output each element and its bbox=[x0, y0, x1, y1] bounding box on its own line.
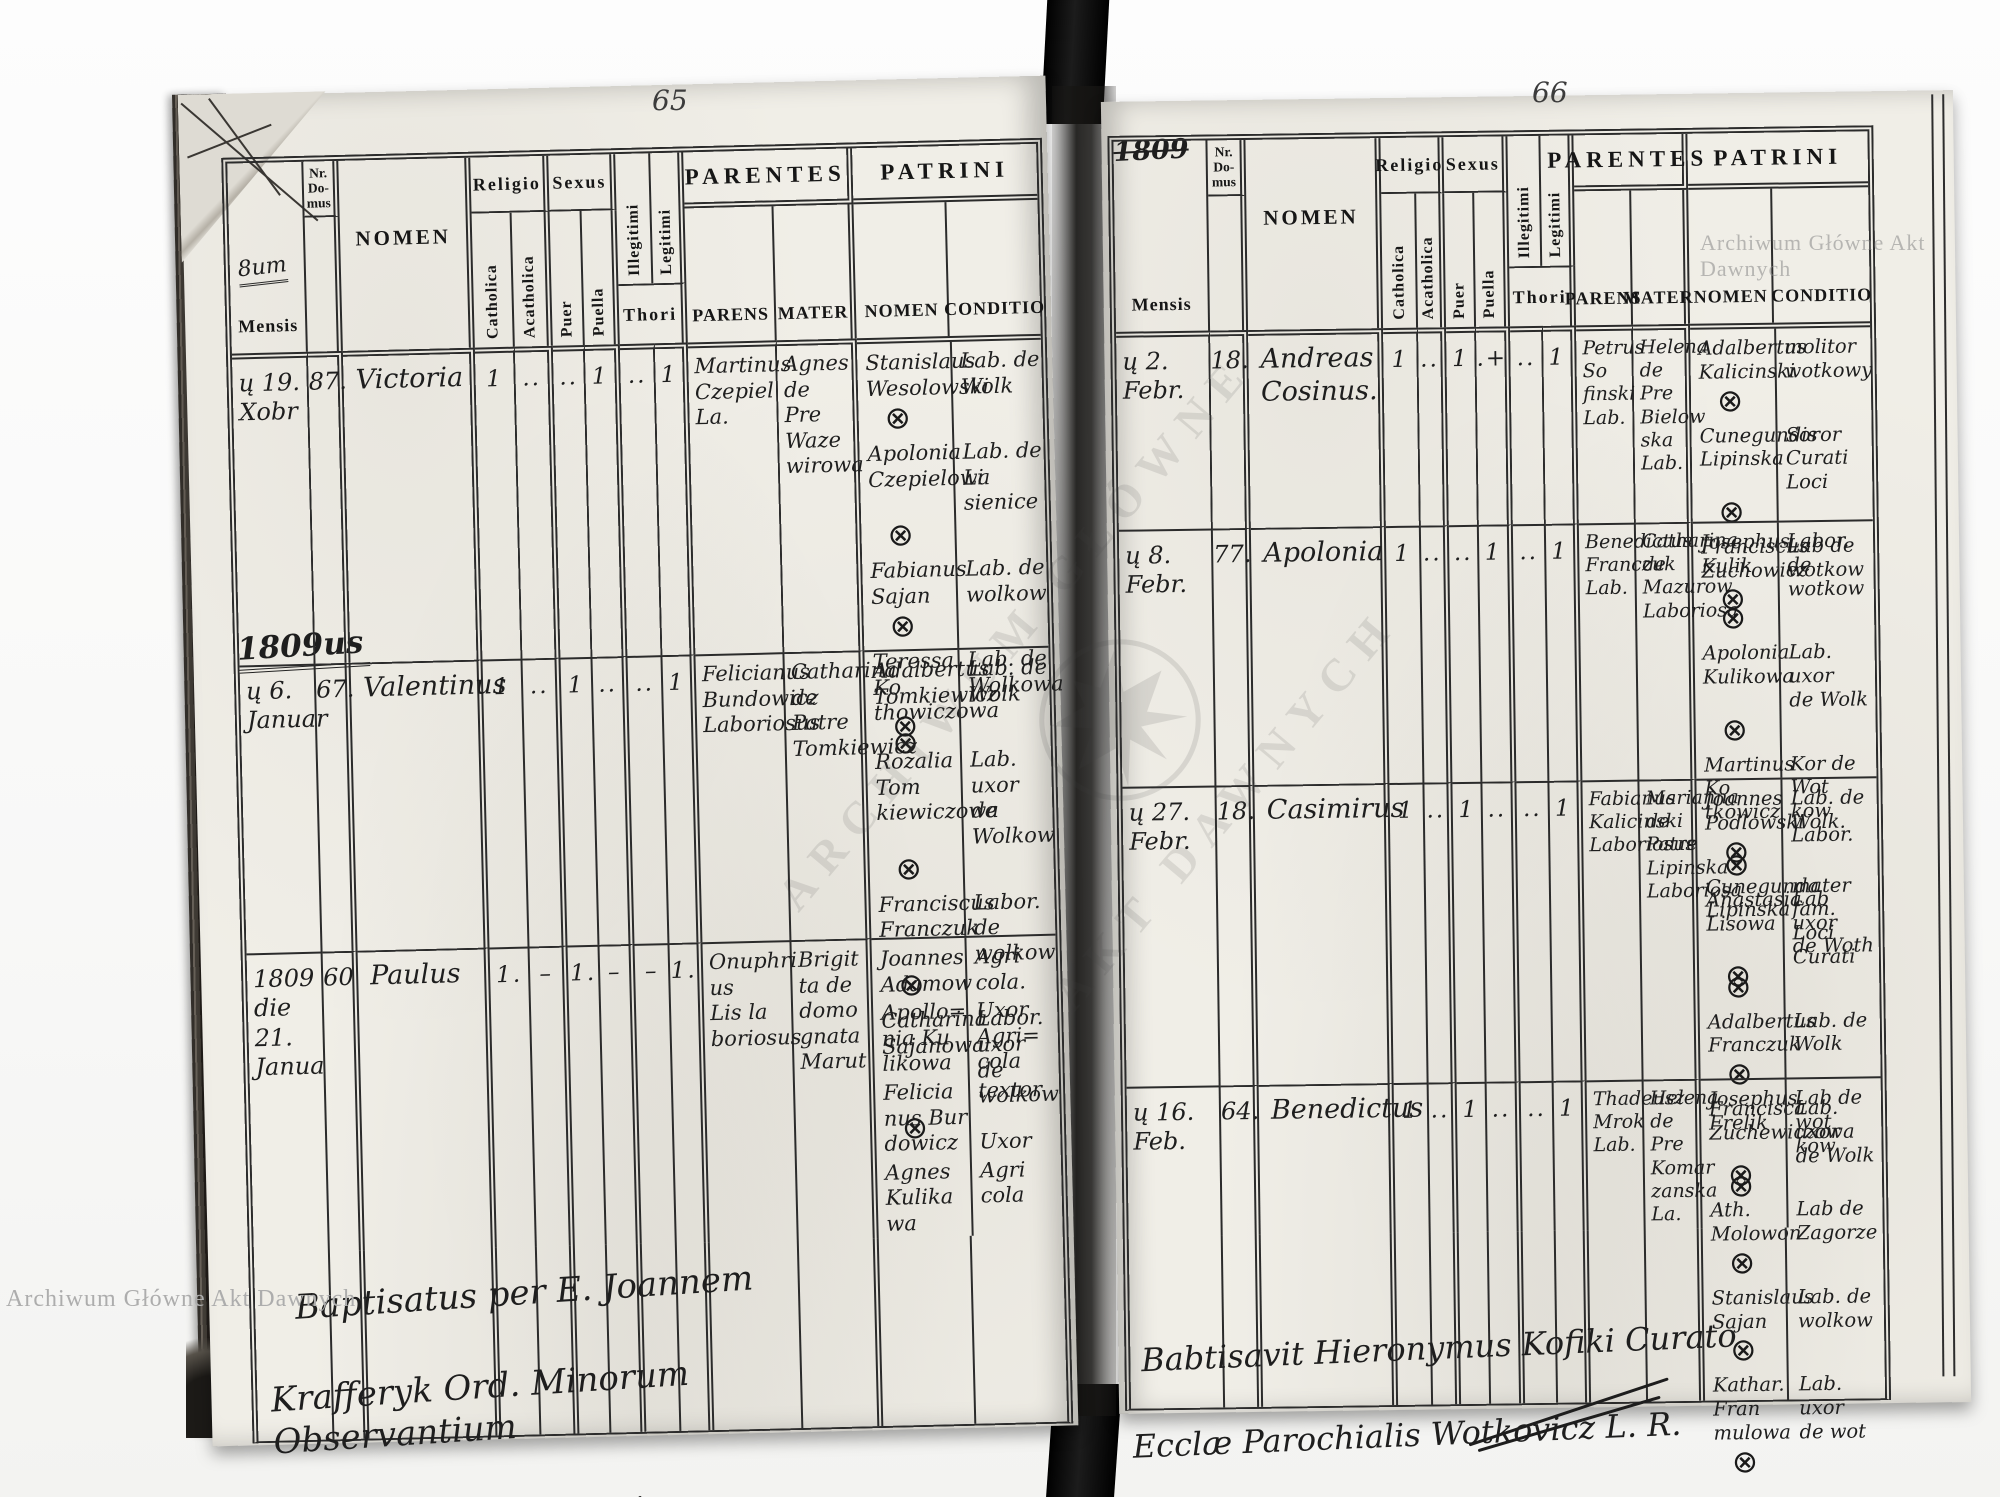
godparent-mark-row: ⊗ bbox=[866, 706, 1051, 747]
tally-mark: 1 bbox=[1554, 1080, 1589, 1230]
spacer bbox=[1778, 600, 1875, 638]
signature-cross-icon: ⊗ bbox=[863, 608, 957, 647]
tally-mark: .+ bbox=[1476, 326, 1513, 524]
mother-name: Brigit ta de domo gnata Marut bbox=[791, 938, 878, 1240]
tally-mark: 1 bbox=[482, 659, 529, 948]
signature-cross-icon: ⊗ bbox=[858, 400, 952, 439]
header-legitimi: Legitimi bbox=[650, 152, 686, 283]
note-line: Krafferyk Ord. Minorum Observantium bbox=[270, 1338, 946, 1464]
empty-ruled-cell bbox=[1787, 1226, 1885, 1399]
spacer bbox=[1781, 833, 1878, 871]
signature-cross-icon: ⊗ bbox=[1697, 834, 1782, 872]
godparent-condition: Lab. de Wolk bbox=[957, 652, 1049, 708]
godparent-entry: Apollo= nia Ku likowaUxor Agri= cola bbox=[873, 994, 1059, 1078]
baptism-register-table-right: MensisNr. Do- musNOMENReligioCatholicaAc… bbox=[1107, 125, 1891, 1411]
godparent-condition: Labor. de wotkow bbox=[1777, 525, 1874, 601]
tally-mark: 1 bbox=[1383, 328, 1421, 526]
godparent-name: Felicia nus Bur dowicz bbox=[875, 1076, 970, 1158]
tally-mark: .. bbox=[1449, 525, 1483, 782]
header-patrini: PATRINI bbox=[1687, 131, 1868, 190]
godparent-name: Cunegunda Lipinska bbox=[1698, 871, 1783, 970]
godparent-condition: Lab. de Wolk bbox=[950, 344, 1042, 400]
signature-cross-icon: ⊗ bbox=[869, 851, 963, 890]
godparent-name: Josephus Kulik bbox=[1693, 527, 1778, 603]
tally-mark: 1 bbox=[1549, 780, 1586, 1080]
godparent-name: Stanislaus Wesolowski bbox=[857, 346, 951, 402]
tally-mark: 1 bbox=[1546, 523, 1583, 780]
godparent-condition: molitor wotkowy bbox=[1774, 331, 1872, 383]
header-parentes: PARENTES bbox=[683, 148, 853, 208]
godparent-name: Joannes Podlowski bbox=[1696, 784, 1781, 836]
page-number-right: 66 bbox=[1532, 76, 1568, 110]
godparent-condition: Lab. uxor de Wolk bbox=[1778, 637, 1875, 713]
house-number: 18. bbox=[1210, 330, 1251, 529]
tally-mark: 1 bbox=[1543, 325, 1579, 523]
spacer bbox=[954, 515, 1046, 554]
tally-mark: .. bbox=[1424, 782, 1456, 1082]
tally-mark: 1 bbox=[1389, 783, 1428, 1083]
godparent-mark-row: ⊗ bbox=[863, 606, 1048, 647]
child-name: Apolonia bbox=[1251, 526, 1390, 785]
entry-date: ų 2. Febr. bbox=[1116, 331, 1213, 530]
godparent-name: Adalbertus Franczuk bbox=[1700, 1006, 1785, 1058]
spacer bbox=[956, 606, 1048, 645]
tally-mark: .. bbox=[1516, 781, 1553, 1081]
tally-mark: 1 bbox=[1452, 782, 1486, 1082]
note-line: mpa bbox=[1547, 1481, 1768, 1497]
child-name: Paulus bbox=[358, 947, 497, 1250]
header-puer-label: Puer bbox=[558, 300, 577, 337]
baptism-note-left: Baptisatus per E. Joannem Krafferyk Ord.… bbox=[273, 1206, 954, 1497]
header-legitimi-label: Legitimi bbox=[1546, 192, 1565, 258]
tally-mark: 1 bbox=[1386, 526, 1425, 783]
header-legitimi-label: Legitimi bbox=[656, 209, 676, 275]
mother-name: Helena de Pre Bielow ska Lab. bbox=[1633, 324, 1693, 523]
header-catholica: Catholica bbox=[1381, 194, 1418, 328]
godparent-entry: Adalbertus FranczukLab. de Wolk bbox=[1700, 1005, 1881, 1058]
godparent-name: Apolonia Czepielowa bbox=[859, 437, 954, 519]
note-line: Ecclæ Parochialis Wotkovicz L. R. bbox=[1132, 1401, 1765, 1466]
godparent-condition: Lab. de Wolk bbox=[1784, 1005, 1881, 1057]
header-illegitimi: Illegitimi bbox=[615, 153, 653, 284]
tally-mark: .. bbox=[1482, 781, 1520, 1081]
spacer bbox=[959, 706, 1051, 745]
entry-date: 1809 die 21. Janua bbox=[247, 952, 330, 1254]
header-patrini-nomen: NOMEN bbox=[853, 202, 949, 338]
godparent-entry: Josephus KulikLabor. de wotkow bbox=[1693, 525, 1874, 602]
godparent-condition: Lab. de Li sienice bbox=[952, 435, 1045, 517]
godparent-entry: Adalbertus Kalicinskimolitor wotkowy bbox=[1690, 331, 1871, 384]
godparent-entry: Josephus FrelikLab de wot kow bbox=[1701, 1082, 1882, 1159]
spacer bbox=[1790, 1443, 1887, 1481]
godparent-entry: Cunegundis LipinskaSoror Curati Loci bbox=[1691, 419, 1872, 496]
header-catholica: Catholica bbox=[472, 213, 515, 348]
child-name: Victoria bbox=[343, 348, 483, 663]
godparent-entry: Apolonia CzepielowaLab. de Li sienice bbox=[859, 435, 1045, 519]
godparent-name: Adalbertus Tomkiewicz bbox=[865, 654, 959, 710]
header-catholica-label: Catholica bbox=[483, 264, 503, 339]
spacer bbox=[1779, 711, 1876, 749]
entry-date: ų 8. Febr. bbox=[1119, 528, 1217, 786]
tally-mark: 1 bbox=[1457, 1082, 1489, 1232]
godparent-mark-row: ⊗ bbox=[858, 398, 1043, 439]
tally-mark: .. bbox=[1510, 326, 1546, 524]
baptism-note-right: Babtisavit Hieronymus Kofiki Curato Eccl… bbox=[1139, 1276, 1774, 1497]
godparent-entry: Adalbertus TomkiewiczLab. de Wolk bbox=[865, 652, 1050, 711]
header-acatholica-label: Acatholica bbox=[1419, 236, 1438, 319]
godparent-name: Apollo= nia Ku likowa bbox=[873, 996, 968, 1078]
godparent-name: Apolonia Kulikowa bbox=[1694, 638, 1779, 714]
left-page: 8um 1809us MensisNr. Do- musNOMENReligio… bbox=[180, 76, 1079, 1447]
godparent-entry: Rozalia Tom kiewiczowaLab. uxor de Wolko… bbox=[867, 743, 1054, 853]
godparent-condition: Soror Curati Loci bbox=[1775, 419, 1872, 495]
godparents-cell: Stanislaus WesolowskiLab. de Wolk⊗Apolon… bbox=[857, 334, 1049, 650]
right-page: 1809 MensisNr. Do- musNOMENReligioCathol… bbox=[1101, 90, 1971, 1414]
godparent-condition: Agri cola bbox=[970, 1153, 1063, 1235]
header-nomen: NOMEN bbox=[338, 158, 475, 351]
signature-cross-icon: ⊗ bbox=[1694, 601, 1779, 639]
child-name: Benedictus bbox=[1259, 1083, 1396, 1235]
spacer bbox=[1783, 968, 1880, 1006]
godparent-entry: Felicia nus Bur dowicztextor Uxor bbox=[875, 1074, 1061, 1158]
note-line: Babtisavit Hieronymus Kofiki Curato bbox=[1140, 1315, 1761, 1380]
header-catholica-label: Catholica bbox=[1389, 245, 1408, 320]
header-sexus: Sexus bbox=[548, 154, 616, 212]
header-mensis: Mensis bbox=[227, 162, 308, 354]
tally-mark: 1 bbox=[1446, 327, 1479, 525]
godparent-mark-row: ⊗ bbox=[1702, 1157, 1882, 1197]
godparent-condition: Lab. de wolkow bbox=[955, 552, 1047, 608]
header-sexus: Sexus bbox=[1443, 136, 1508, 193]
tally-mark: .. bbox=[1421, 525, 1453, 782]
header-religio: Religio bbox=[1380, 137, 1444, 194]
godparent-mark-row: ⊗ bbox=[1694, 600, 1874, 640]
entry-date: ų 19. Xobr bbox=[232, 352, 316, 666]
mother-name: Catharina de Mazurow Laboriosa bbox=[1636, 522, 1697, 780]
godparent-name: Josephus Frelik bbox=[1701, 1084, 1786, 1160]
spacer bbox=[962, 848, 1054, 887]
spacer bbox=[1775, 382, 1872, 420]
godparent-entry: Stanislaus WesolowskiLab. de Wolk bbox=[857, 344, 1042, 403]
father-name: Onuphri us Lis la boriosus bbox=[702, 940, 798, 1242]
entry-date: ų 16. Feb. bbox=[1127, 1085, 1223, 1236]
mother-name: Catharina de Patre Tomkiewicz bbox=[784, 650, 871, 940]
header-religio: Religio bbox=[470, 156, 549, 214]
note-line: Baptisatus per E. Joannem bbox=[294, 1247, 937, 1330]
archive-watermark-top-right: Archiwum Główne Akt Dawnych bbox=[1700, 230, 2000, 282]
child-name: Andreas Cosinus. bbox=[1248, 328, 1386, 528]
godparents-cell: Adalbertus TomkiewiczLab. de Wolk⊗Rozali… bbox=[864, 646, 1055, 938]
godparent-entry: Joannes AdamowAgri cola. bbox=[872, 940, 1057, 999]
signature-cross-icon: ⊗ bbox=[1695, 712, 1780, 750]
empty-ruled-cell bbox=[972, 1234, 1068, 1424]
godparent-condition: Lab. de Wolk. bbox=[1780, 782, 1877, 834]
header-patrini: PATRINI bbox=[852, 144, 1037, 204]
header-nr-domus: Nr. Do- mus bbox=[303, 161, 339, 218]
godparent-mark-row: ⊗ bbox=[1697, 833, 1877, 873]
child-name: Casimirus bbox=[1254, 783, 1393, 1085]
child-name: Valentinus bbox=[351, 660, 490, 951]
godparent-mark-row: ⊗ bbox=[869, 848, 1054, 889]
house-number: 77. bbox=[1213, 528, 1255, 786]
header-conditio: CONDITIO bbox=[946, 200, 1040, 336]
header-puella-label: Puella bbox=[1480, 270, 1499, 319]
header-puella: Puella bbox=[1474, 192, 1510, 326]
header-puer-label: Puer bbox=[1450, 282, 1469, 319]
godparent-entry: Cunegunda Lipinskamater fam. Loci Curati bbox=[1698, 870, 1879, 971]
godparents-cell: Adalbertus Kalicinskimolitor wotkowy⊗Cun… bbox=[1690, 321, 1873, 521]
spacer bbox=[1786, 1157, 1883, 1195]
tally-mark: .. bbox=[1418, 327, 1449, 525]
header-mensis: Mensis bbox=[1113, 141, 1210, 332]
mother-name: Agnes de Pre Waze wirowa bbox=[777, 338, 865, 652]
header-mater: MATER bbox=[1631, 190, 1690, 325]
house-number: 18. bbox=[1216, 785, 1258, 1086]
note-line: S. E. Francisci. bbox=[394, 1470, 952, 1497]
tally-mark: .. bbox=[1521, 1081, 1556, 1231]
header-puella: Puella bbox=[582, 210, 620, 345]
header-nr-domus-spacer bbox=[305, 217, 343, 352]
header-puella-label: Puella bbox=[589, 288, 608, 337]
godparent-entry: Fabianus SajanLab. de wolkow bbox=[862, 552, 1047, 611]
father-name: Fabianus Kalicinski Laboriosus bbox=[1582, 780, 1643, 1081]
signature-cross-icon: ⊗ bbox=[1702, 1158, 1787, 1196]
godparents-cell: Josephus KulikLabor. de wotkow⊗Apolonia … bbox=[1693, 519, 1877, 778]
archive-watermark-bottom-left: Archiwum Główne Akt Dawnych bbox=[6, 1286, 356, 1313]
godparent-condition: textor Uxor bbox=[968, 1074, 1061, 1156]
spacer bbox=[951, 398, 1043, 437]
godparent-name: Cunegundis Lipinska bbox=[1691, 420, 1776, 496]
father-name: Felicianus Bundowicz Laboriosus bbox=[695, 652, 791, 942]
header-mater: MATER bbox=[773, 204, 856, 340]
mother-name: Helena de Pre Komar zanska La. bbox=[1644, 1079, 1703, 1230]
header-illegitimi: Illegitimi bbox=[1507, 136, 1542, 266]
header-parens: PARENS bbox=[685, 206, 777, 342]
mother-name: Marianna de Patre Lipinska Laboriosa bbox=[1639, 779, 1700, 1080]
father-name: Benedictus Franczuk Lab. bbox=[1579, 523, 1640, 781]
header-puer: Puer bbox=[550, 211, 585, 346]
godparent-name: Fabianus Sajan bbox=[862, 554, 956, 610]
godparent-entry: Joannes PodlowskiLab. de Wolk. bbox=[1696, 782, 1877, 835]
godparent-condition: mater fam. Loci Curati bbox=[1782, 870, 1879, 969]
header-illegitimi-label: Illegitimi bbox=[624, 203, 644, 276]
godparent-mark-row: ⊗ bbox=[1691, 382, 1871, 422]
header-illegitimi-label: Illegitimi bbox=[1515, 186, 1534, 258]
header-nomen: NOMEN bbox=[1245, 138, 1383, 330]
tally-mark: .. bbox=[1513, 524, 1550, 781]
house-number: 64. bbox=[1221, 1085, 1261, 1236]
header-nr-domus-spacer bbox=[1208, 196, 1248, 331]
tally-mark: .. bbox=[1487, 1081, 1523, 1231]
godparents-cell: Joannes PodlowskiLab. de Wolk.⊗Cunegunda… bbox=[1696, 776, 1880, 1078]
entry-date: ų 27. Febr. bbox=[1122, 785, 1220, 1086]
father-name: Martinus Czepiel La. bbox=[688, 340, 785, 654]
entry-date: ų 6. Januar bbox=[240, 664, 323, 954]
godparent-name: Adalbertus Kalicinski bbox=[1690, 333, 1775, 385]
godparents-cell: Josephus FrelikLab de wot kow⊗Ath. Molow… bbox=[1701, 1076, 1883, 1228]
godparent-mark-row: ⊗ bbox=[861, 515, 1046, 556]
godparent-entry: Apolonia KulikowaLab. uxor de Wolk bbox=[1694, 637, 1875, 714]
header-nr-domus: Nr. Do- mus bbox=[1207, 140, 1246, 197]
godparents-cell: Joannes AdamowAgri cola.Apollo= nia Ku l… bbox=[871, 934, 1062, 1238]
signature-cross-icon: ⊗ bbox=[1699, 969, 1784, 1007]
signature-cross-icon: ⊗ bbox=[1691, 383, 1776, 421]
father-name: Petrus So finski Lab. bbox=[1576, 325, 1636, 524]
signature-cross-icon: ⊗ bbox=[866, 708, 960, 747]
father-name: Thadeusz Mrok Lab. bbox=[1587, 1080, 1646, 1231]
page-number-left: 65 bbox=[652, 84, 688, 118]
header-acatholica: Acatholica bbox=[1416, 193, 1446, 327]
godparent-condition: Uxor Agri= cola bbox=[966, 994, 1059, 1076]
godparent-condition: Lab. uxor de Wolkow bbox=[960, 743, 1055, 851]
godparent-condition: Agri cola. bbox=[965, 940, 1057, 996]
godparent-mark-row: ⊗ bbox=[1699, 968, 1879, 1008]
tally-mark: 1 bbox=[1479, 524, 1517, 781]
page-margin-rule bbox=[1931, 94, 1955, 1376]
header-acatholica: Acatholica bbox=[512, 212, 553, 347]
scanned-register-spread: 8um 1809us MensisNr. Do- musNOMENReligio… bbox=[0, 0, 2000, 1497]
godparent-name: Rozalia Tom kiewiczowa bbox=[867, 745, 963, 853]
signature-cross-icon: ⊗ bbox=[861, 517, 955, 556]
header-parentes: PARENTES bbox=[1573, 134, 1688, 192]
godparent-mark-row: ⊗ bbox=[1695, 711, 1875, 751]
godparent-name: Joannes Adamow bbox=[872, 942, 966, 998]
header-puer: Puer bbox=[1444, 193, 1476, 327]
header-thori: Thori bbox=[618, 282, 687, 344]
tally-mark: 1 bbox=[1394, 1083, 1431, 1233]
tally-mark: .. bbox=[1429, 1082, 1459, 1232]
godparent-condition: Lab de wot kow bbox=[1785, 1082, 1882, 1158]
header-acatholica-label: Acatholica bbox=[520, 255, 540, 338]
